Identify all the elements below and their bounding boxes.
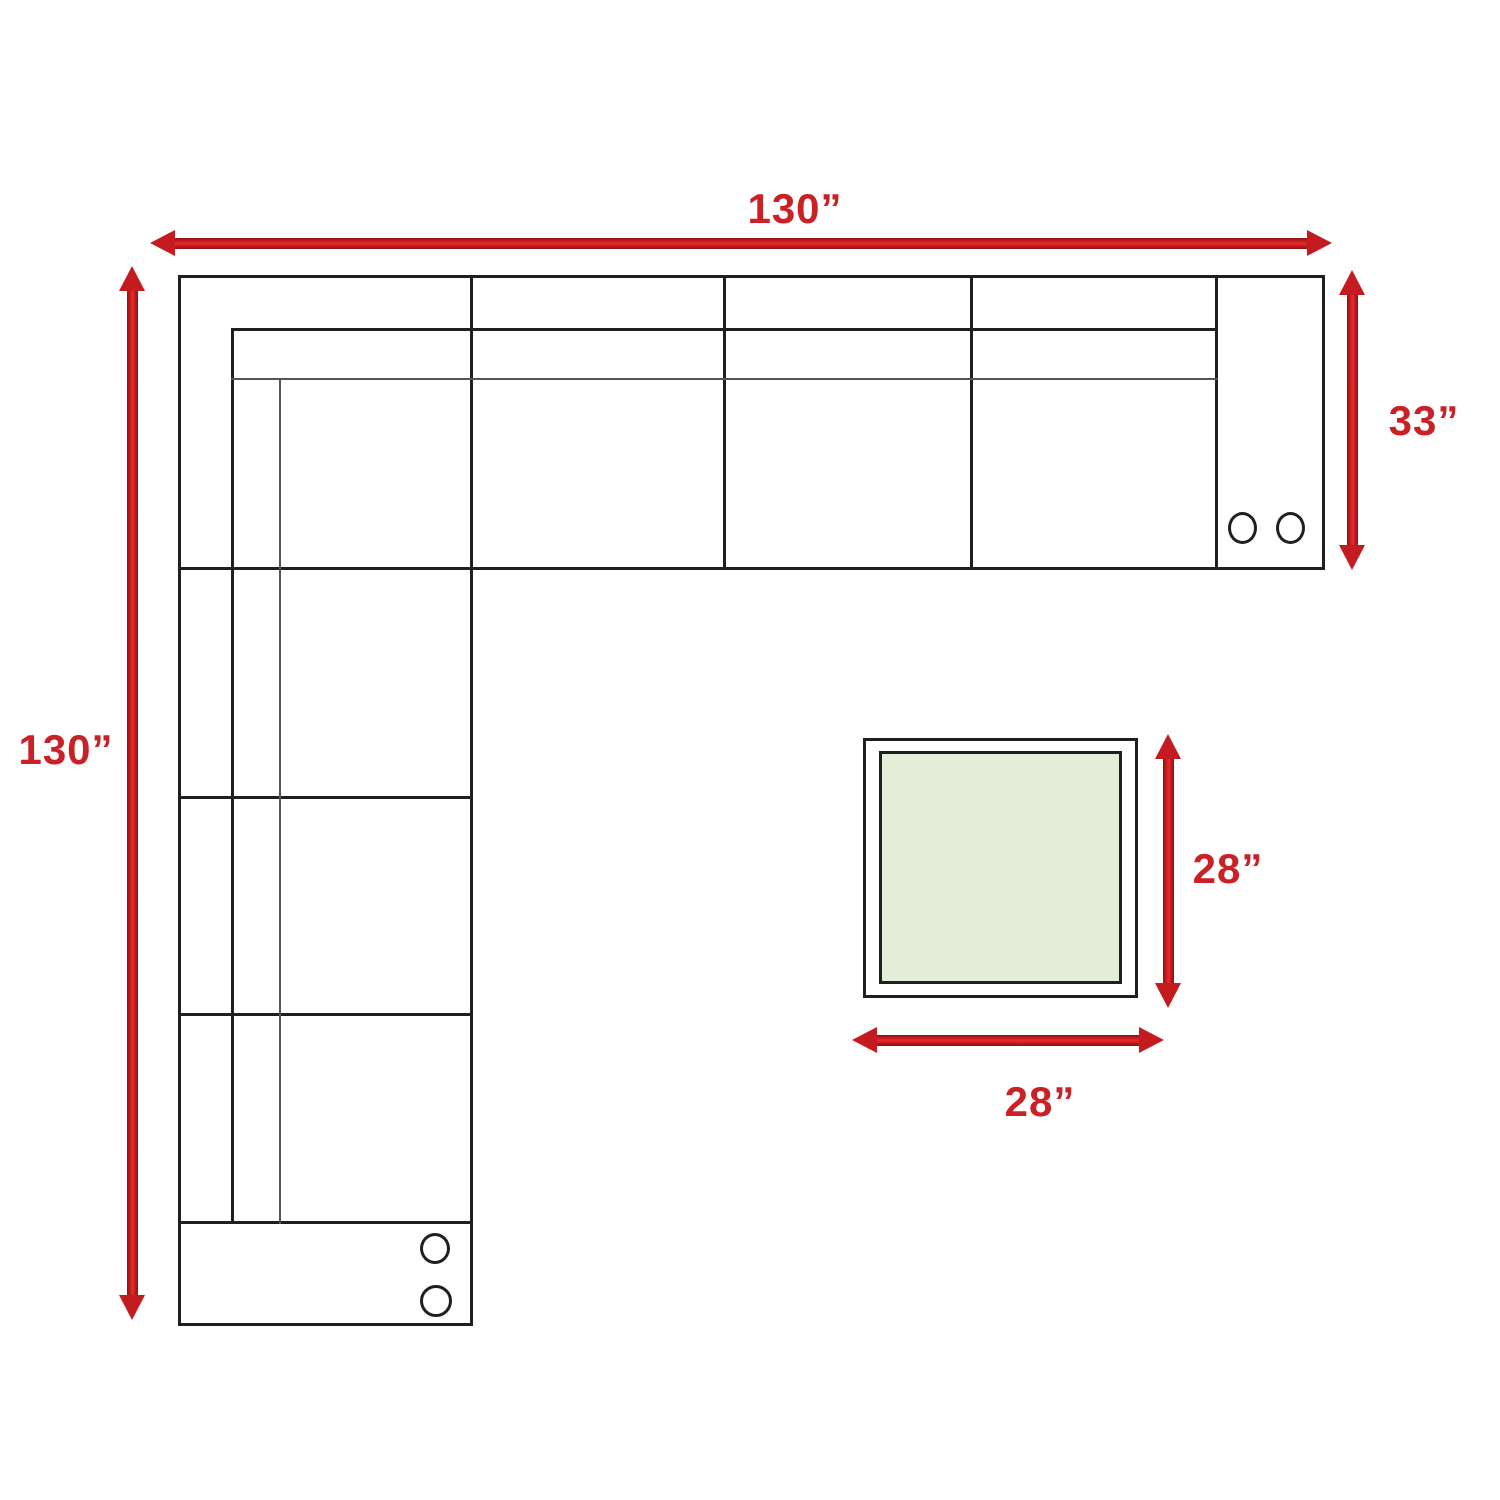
table-width-label: 28” — [1005, 1078, 1076, 1126]
table-height-arrow — [1155, 734, 1181, 1008]
sofa-height-arrow — [119, 266, 145, 1320]
arrow-head-up-icon — [119, 266, 145, 291]
sofa-backrest-inner-line — [279, 378, 281, 1224]
sofa-left-column-outline — [178, 275, 473, 1326]
arrow-head-down-icon — [1155, 983, 1181, 1008]
sofa-depth-arrow — [1339, 270, 1365, 570]
arrow-shaft — [1163, 759, 1174, 983]
cupholder-circle — [420, 1285, 452, 1317]
arrow-head-right-icon — [1139, 1027, 1164, 1053]
sofa-seat-divider — [723, 275, 726, 570]
table-width-arrow — [852, 1027, 1164, 1053]
sofa-seat-divider — [178, 796, 473, 799]
sofa-depth-label: 33” — [1389, 397, 1460, 445]
arrow-shaft — [127, 291, 138, 1295]
sofa-bottom-arm-divider — [178, 1221, 473, 1224]
table-height-label: 28” — [1193, 845, 1264, 893]
arrow-shaft — [1347, 295, 1358, 545]
arrow-head-left-icon — [150, 230, 175, 256]
floorplan-diagram: 130” 130” 33” 28” 28” — [0, 0, 1500, 1500]
arrow-head-up-icon — [1339, 270, 1365, 295]
arrow-head-right-icon — [1307, 230, 1332, 256]
sofa-backrest-line — [231, 328, 234, 1224]
sofa-seat-divider — [970, 275, 973, 570]
sofa-right-arm-divider — [1215, 275, 1218, 570]
arrow-head-down-icon — [1339, 545, 1365, 570]
arrow-head-down-icon — [119, 1295, 145, 1320]
sofa-backrest-inner-line — [231, 378, 1218, 380]
cupholder-circle — [1228, 512, 1257, 544]
sofa-seat-divider — [178, 1013, 473, 1016]
cupholder-circle — [420, 1233, 450, 1264]
sofa-width-label: 130” — [747, 185, 842, 233]
arrow-head-left-icon — [852, 1027, 877, 1053]
cupholder-circle — [1276, 512, 1305, 544]
arrow-shaft — [877, 1035, 1139, 1046]
table-outline — [863, 738, 1138, 998]
table-top — [879, 751, 1122, 984]
sofa-width-arrow — [150, 230, 1332, 256]
arrow-shaft — [175, 238, 1307, 249]
sofa-backrest-line — [231, 328, 1218, 331]
sofa-height-label: 130” — [18, 726, 113, 774]
arrow-head-up-icon — [1155, 734, 1181, 759]
